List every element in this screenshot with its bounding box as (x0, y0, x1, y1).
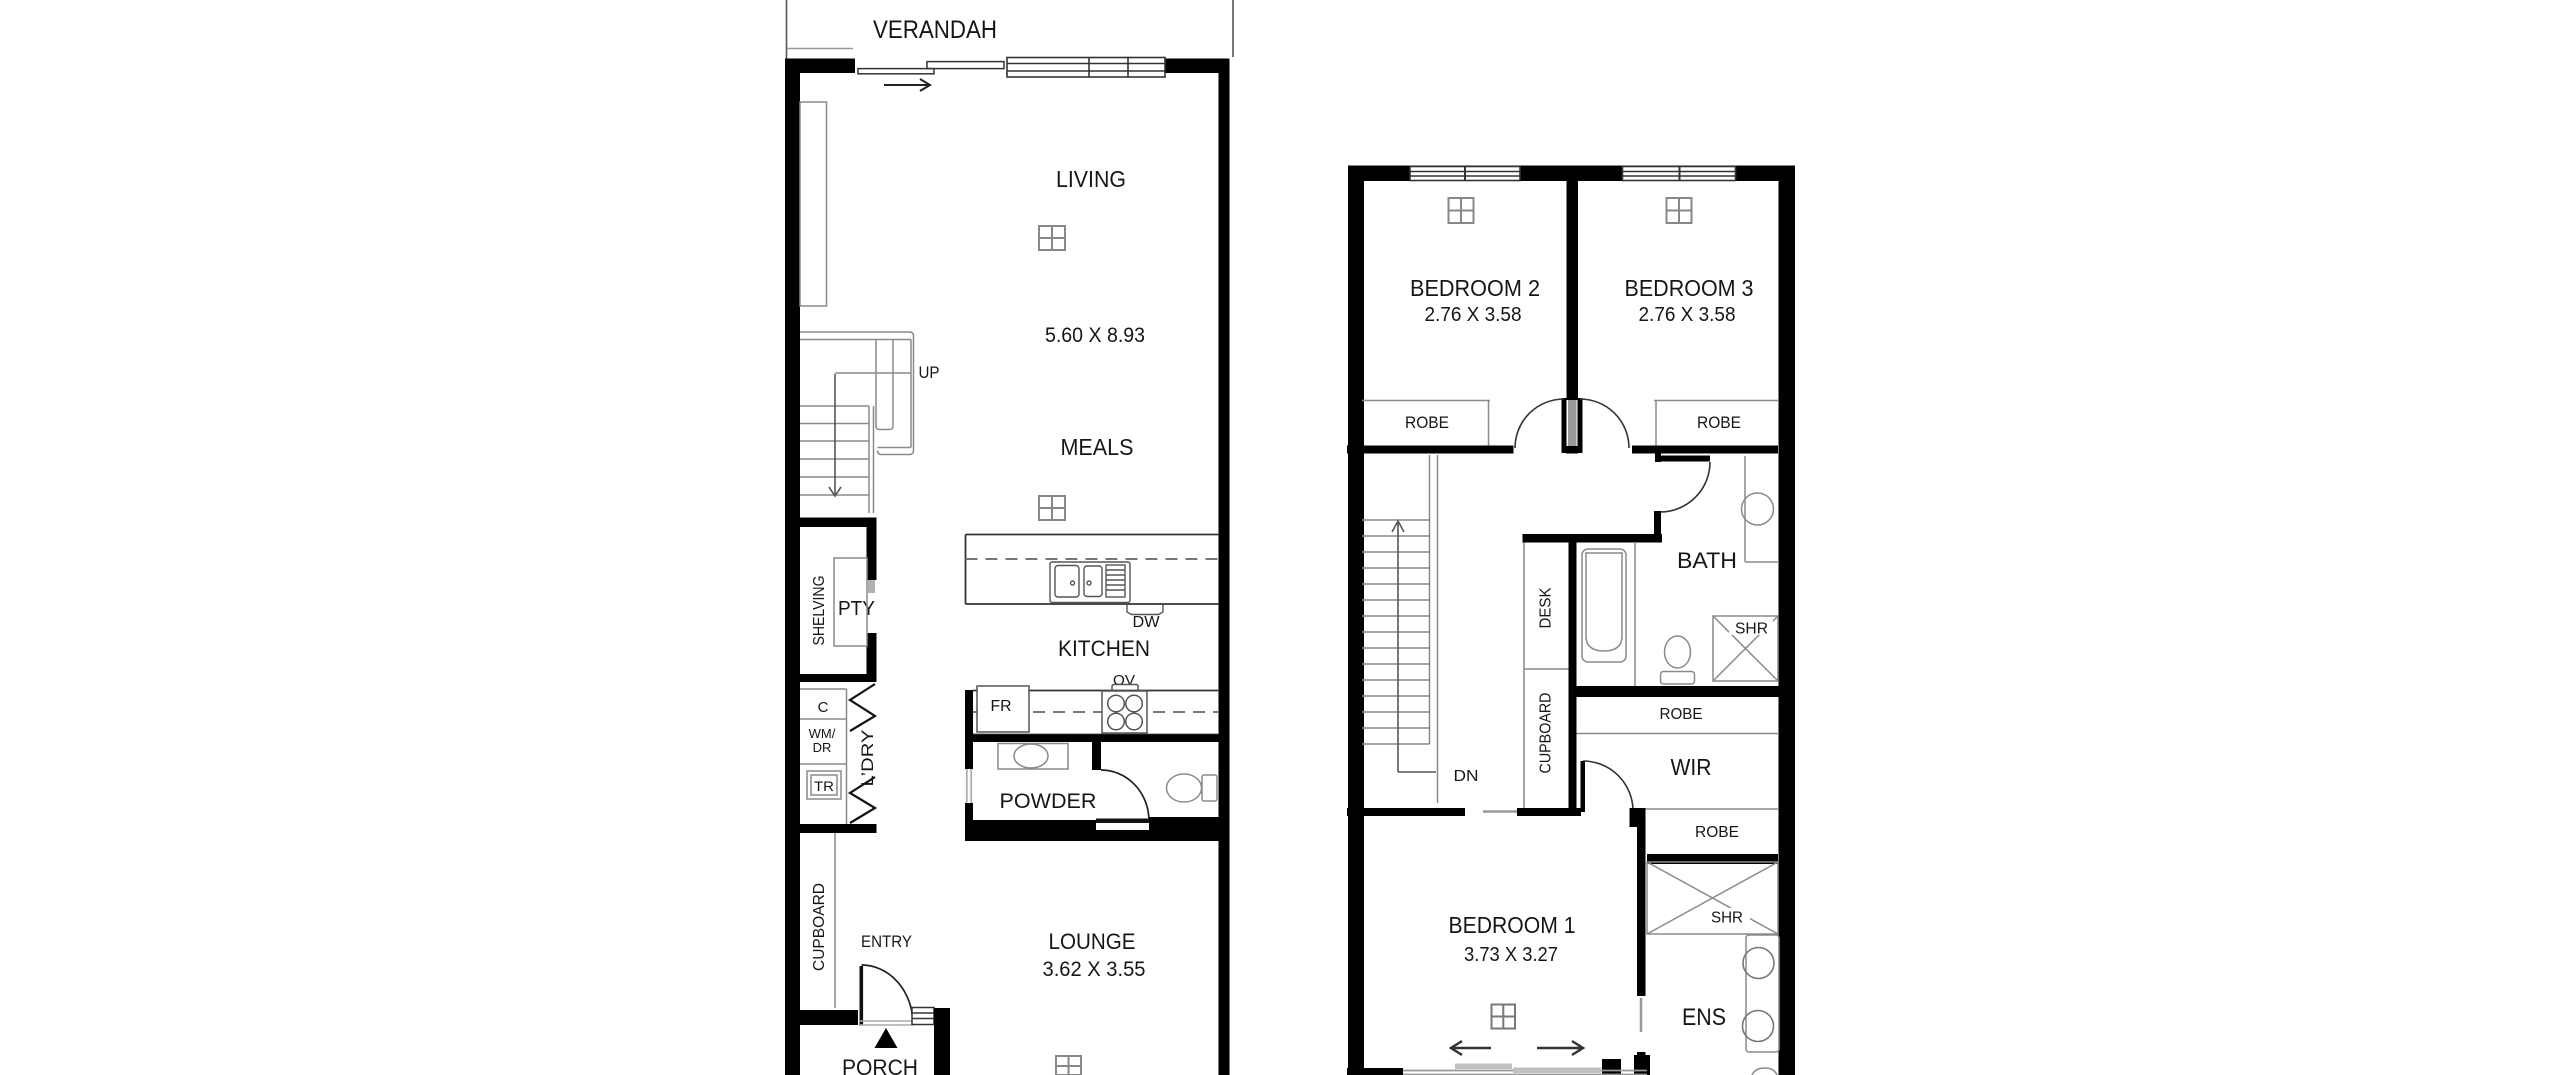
svg-text:DN: DN (1454, 768, 1479, 785)
svg-text:5.60 X 8.93: 5.60 X 8.93 (1045, 324, 1145, 347)
svg-text:CUPBOARD: CUPBOARD (1538, 693, 1555, 774)
svg-text:BATH: BATH (1677, 548, 1737, 573)
svg-text:ROBE: ROBE (1697, 413, 1741, 432)
svg-text:PTY: PTY (838, 598, 875, 620)
svg-text:ROBE: ROBE (1660, 706, 1703, 723)
svg-text:DW: DW (1133, 614, 1161, 631)
svg-text:TR: TR (814, 778, 834, 794)
svg-text:3.73 X 3.27: 3.73 X 3.27 (1464, 944, 1558, 966)
svg-text:BEDROOM 3: BEDROOM 3 (1625, 275, 1754, 301)
svg-text:ROBE: ROBE (1695, 824, 1739, 841)
svg-text:2.76 X 3.58: 2.76 X 3.58 (1639, 304, 1736, 326)
svg-text:VERANDAH: VERANDAH (873, 16, 997, 44)
svg-text:UP: UP (919, 363, 940, 382)
svg-text:POWDER: POWDER (1000, 790, 1097, 813)
svg-text:2.76 X 3.58: 2.76 X 3.58 (1425, 304, 1522, 326)
svg-text:ENS: ENS (1682, 1004, 1726, 1031)
svg-text:LIVING: LIVING (1056, 166, 1126, 192)
svg-text:LOUNGE: LOUNGE (1049, 929, 1136, 954)
svg-text:WM/: WM/ (809, 726, 836, 741)
svg-text:FR: FR (991, 698, 1012, 715)
svg-text:DR: DR (813, 740, 832, 755)
svg-text:L’DRY: L’DRY (858, 730, 877, 787)
svg-text:MEALS: MEALS (1061, 434, 1134, 460)
svg-text:BEDROOM 2: BEDROOM 2 (1410, 275, 1540, 301)
svg-text:KITCHEN: KITCHEN (1058, 636, 1150, 661)
svg-text:ENTRY: ENTRY (861, 932, 912, 951)
svg-text:ROBE: ROBE (1405, 413, 1449, 432)
svg-text:SHR: SHR (1735, 621, 1768, 638)
svg-text:CUPBOARD: CUPBOARD (811, 883, 828, 971)
svg-text:DESK: DESK (1538, 587, 1555, 628)
svg-text:SHR: SHR (1711, 910, 1743, 927)
svg-text:WIR: WIR (1671, 754, 1712, 780)
svg-text:BEDROOM 1: BEDROOM 1 (1449, 912, 1576, 938)
svg-text:C: C (818, 699, 829, 716)
svg-text:OV: OV (1113, 672, 1135, 689)
svg-text:PORCH: PORCH (842, 1055, 918, 1075)
svg-text:3.62 X 3.55: 3.62 X 3.55 (1043, 958, 1146, 981)
svg-text:SHELVING: SHELVING (811, 576, 828, 646)
